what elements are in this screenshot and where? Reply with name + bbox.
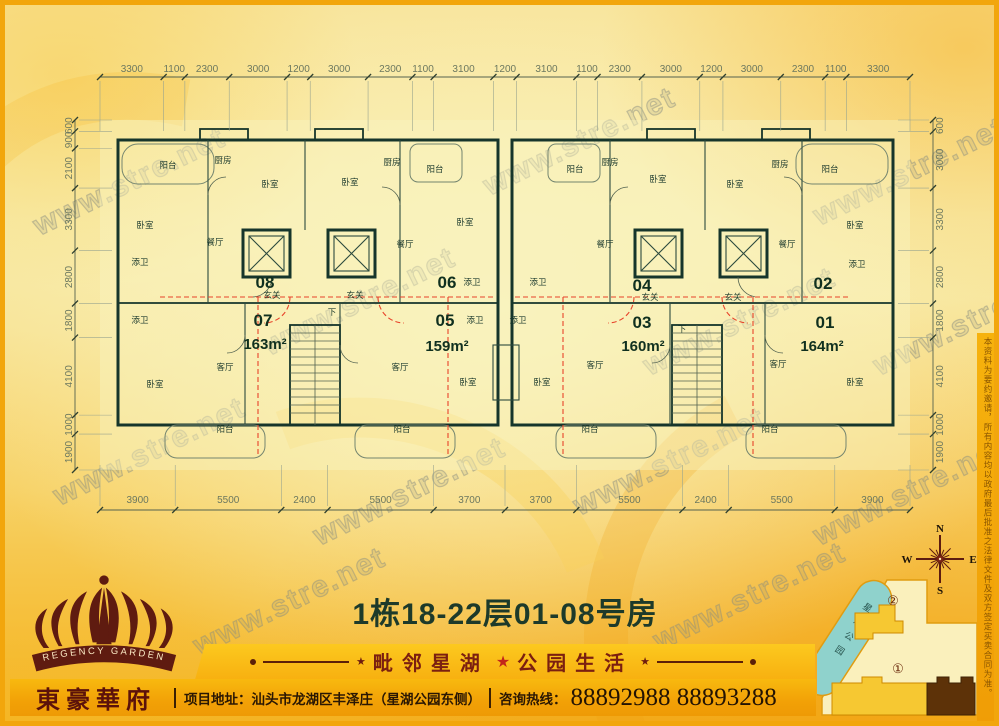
- dimension-label: 3700: [458, 495, 481, 506]
- disclaimer-strip: 本资料为要约邀请，所有内容均以政府最后批准之法律文件及双方签定买卖合同为准。: [977, 333, 994, 725]
- dimension-label: 2400: [694, 495, 717, 506]
- dimension-label: 1200: [494, 64, 517, 75]
- address-label: 项目地址：: [184, 688, 252, 708]
- room-label: 卧室: [146, 379, 164, 389]
- room-label: 阳台: [216, 424, 233, 434]
- room-label: 添卫: [529, 277, 547, 287]
- room-label: 玄关: [346, 290, 364, 300]
- room-label: 餐厅: [778, 239, 796, 249]
- unit-number: 02: [814, 274, 833, 293]
- slogan-row: ★ 毗邻星湖 ★ 公园生活 ★: [250, 647, 756, 676]
- room-label: 卧室: [533, 377, 551, 387]
- address-value: 汕头市龙湖区丰泽庄（星湖公园东侧）: [252, 688, 482, 708]
- dimension-label: 2300: [196, 64, 219, 75]
- dimension-label: 3300: [121, 64, 144, 75]
- room-label: 阳台: [159, 160, 176, 170]
- dimension-label: 3000: [660, 64, 683, 75]
- compass-hub-dot: [939, 558, 941, 560]
- dimension-label: 1900: [935, 440, 946, 463]
- building-1-highlighted-section: [927, 677, 975, 715]
- room-label: 卧室: [136, 220, 154, 230]
- dimension-label: 2100: [64, 157, 75, 180]
- room-label: 阳台: [761, 424, 778, 434]
- dimension-label: 1200: [700, 64, 723, 75]
- unit-area: 164m²: [800, 338, 843, 355]
- compass-south: S: [937, 585, 943, 597]
- room-label: 客厅: [769, 359, 787, 369]
- dimension-label: 1000: [935, 413, 946, 436]
- room-label: 阳台: [821, 164, 838, 174]
- unit-area: 160m²: [621, 338, 664, 355]
- room-label: 客厅: [586, 360, 604, 370]
- dimension-label: 3000: [247, 64, 270, 75]
- room-label: 添卫: [131, 257, 149, 267]
- dimension-label: 1900: [64, 440, 75, 463]
- dimension-label: 3300: [867, 64, 890, 75]
- room-label: 阳台: [426, 164, 443, 174]
- dimension-label: 600: [64, 117, 75, 134]
- building-2-label: ②: [887, 593, 899, 608]
- room-label: 卧室: [846, 220, 864, 230]
- unit-number: 07: [254, 311, 273, 330]
- dimension-label: 4100: [935, 365, 946, 388]
- dimension-label: 1100: [576, 64, 598, 75]
- separator: [489, 688, 491, 708]
- compass-north: N: [936, 523, 944, 535]
- plan-title: 1栋18-22层01-08号房: [285, 589, 725, 633]
- dimension-label: 2800: [64, 265, 75, 288]
- room-label: 添卫: [466, 315, 484, 325]
- room-label: 厨房: [383, 157, 400, 167]
- unit-number: 04: [633, 276, 652, 295]
- star-icon: ★: [640, 655, 650, 668]
- dimension-label: 1100: [163, 64, 185, 75]
- room-label: 厨房: [214, 155, 231, 165]
- crown-logo: REGENCY GARDEN: [19, 571, 189, 693]
- room-label: 厨房: [601, 157, 618, 167]
- dimension-label: 1200: [288, 64, 311, 75]
- room-label: 卧室: [726, 179, 744, 189]
- rule-line: [263, 661, 349, 663]
- flyer-page: www.stre.net www.stre.net www.stre.net w…: [0, 0, 999, 726]
- dimension-label: 5500: [771, 495, 794, 506]
- room-label: 添卫: [131, 315, 149, 325]
- dimension-label: 3000: [741, 64, 764, 75]
- dimension-label: 2300: [379, 64, 402, 75]
- room-label: 阳台: [566, 164, 583, 174]
- building-1-label: ①: [892, 661, 904, 676]
- room-label: 阳台: [393, 424, 410, 434]
- rule-dot: [750, 659, 756, 665]
- rule-line: [657, 661, 743, 663]
- site-map: 星湖公园 NSWE②①: [817, 521, 999, 726]
- unit-number: 01: [816, 313, 835, 332]
- room-label: 卧室: [846, 377, 864, 387]
- crown-icon: [35, 575, 172, 648]
- hotline-label: 咨询热线：: [499, 688, 567, 708]
- star-icon: ★: [356, 655, 366, 668]
- dimension-label: 2400: [293, 495, 316, 506]
- room-label: 客厅: [216, 362, 234, 372]
- floor-plan: 3300110023003000120030002300110031001200…: [60, 45, 950, 525]
- dimension-label: 1000: [64, 413, 75, 436]
- room-label: 添卫: [848, 259, 866, 269]
- room-label: 添卫: [509, 315, 527, 325]
- building-1-footprint: [832, 677, 927, 715]
- plan-paper: [100, 120, 910, 470]
- dimension-label: 1800: [64, 309, 75, 332]
- dimension-label: 900: [64, 131, 75, 148]
- room-label: 添卫: [463, 277, 481, 287]
- unit-number: 05: [436, 311, 455, 330]
- unit-number: 08: [256, 273, 275, 292]
- star-icon: ★: [496, 652, 510, 672]
- room-label: 卧室: [649, 174, 667, 184]
- dimension-label: 4100: [64, 365, 75, 388]
- room-label: 卧室: [261, 179, 279, 189]
- room-label: 下: [328, 307, 337, 317]
- slogan-phrase-2: 公园生活: [517, 647, 633, 676]
- compass-west: W: [902, 554, 913, 566]
- room-label: 卧室: [459, 377, 477, 387]
- room-label: 卧室: [341, 177, 359, 187]
- dimension-label: 2300: [792, 64, 815, 75]
- hotline-numbers: 88892988 88893288: [571, 684, 777, 712]
- dimension-label: 3100: [452, 64, 475, 75]
- room-label: 餐厅: [396, 239, 414, 249]
- dimension-label: 3300: [64, 208, 75, 231]
- dimension-label: 5500: [369, 495, 392, 506]
- logo-block: REGENCY GARDEN: [19, 571, 189, 693]
- room-label: 阳台: [581, 424, 598, 434]
- room-label: 餐厅: [596, 239, 614, 249]
- dimension-label: 3700: [530, 495, 553, 506]
- room-label: 客厅: [391, 362, 409, 372]
- room-label: 餐厅: [206, 237, 224, 247]
- dimension-label: 3900: [126, 495, 149, 506]
- room-label: 卧室: [456, 217, 474, 227]
- room-label: 下: [678, 324, 687, 334]
- unit-area: 159m²: [425, 338, 468, 355]
- rule-dot: [250, 659, 256, 665]
- dimension-label: 3300: [935, 208, 946, 231]
- dimension-label: 1100: [412, 64, 434, 75]
- dimension-label: 1800: [935, 309, 946, 332]
- dimension-label: 3900: [861, 495, 884, 506]
- unit-number: 03: [633, 313, 652, 332]
- dimension-label: 3000: [328, 64, 351, 75]
- dimension-label: 600: [935, 117, 946, 134]
- slogan-phrase-1: 毗邻星湖: [373, 647, 489, 676]
- dimension-label: 1100: [825, 64, 847, 75]
- unit-area: 163m²: [243, 336, 286, 353]
- dimension-label: 5500: [217, 495, 240, 506]
- unit-number: 06: [438, 273, 457, 292]
- dimension-label: 2300: [609, 64, 632, 75]
- dimension-label: 2800: [935, 265, 946, 288]
- room-label: 玄关: [724, 292, 742, 302]
- compass-east: E: [969, 554, 976, 566]
- dimension-label: 3100: [535, 64, 558, 75]
- room-label: 厨房: [771, 159, 788, 169]
- dimension-label: 5500: [618, 495, 641, 506]
- dimension-label: 3000: [935, 148, 946, 171]
